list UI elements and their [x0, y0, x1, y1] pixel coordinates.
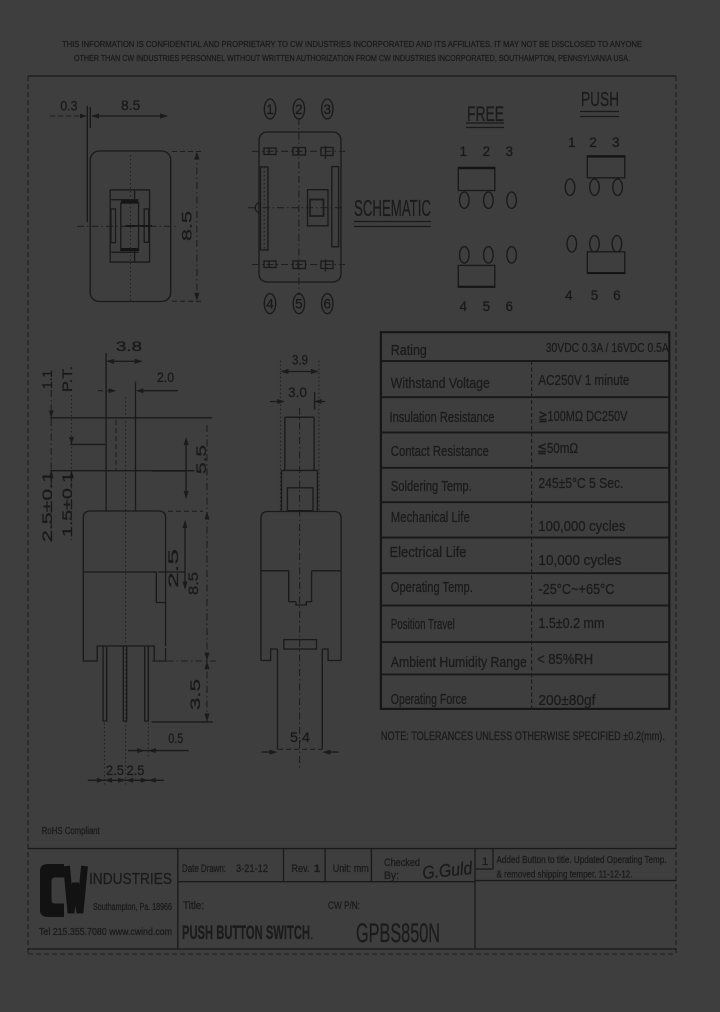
svg-text:5: 5 [591, 288, 599, 303]
svg-text:CW P/N:: CW P/N: [328, 900, 360, 912]
svg-text:1: 1 [482, 856, 488, 868]
svg-text:5.4: 5.4 [290, 730, 311, 745]
svg-text:Insulation Resistance: Insulation Resistance [390, 409, 495, 426]
svg-text:Ambient Humidity Range: Ambient Humidity Range [391, 654, 527, 671]
svg-text:Added Button to title. Updated: Added Button to title. Updated Operating… [497, 854, 667, 866]
svg-text:-25°C~+65°C: -25°C~+65°C [538, 581, 614, 598]
svg-text:6: 6 [613, 288, 621, 303]
svg-text:3.0: 3.0 [288, 385, 307, 400]
svg-text:NOTE: TOLERANCES UNLESS OTHERW: NOTE: TOLERANCES UNLESS OTHERWISE SPECIF… [381, 729, 665, 743]
svg-text:≦50mΩ: ≦50mΩ [537, 440, 578, 457]
svg-text:1.5±0.1: 1.5±0.1 [60, 472, 75, 537]
svg-text:5: 5 [295, 296, 303, 311]
svg-text:3: 3 [324, 102, 332, 117]
svg-text:THIS INFORMATION IS CONFIDENTI: THIS INFORMATION IS CONFIDENTIAL AND PRO… [62, 39, 642, 49]
svg-text:245±5°C 5 Sec.: 245±5°C 5 Sec. [538, 475, 623, 492]
svg-text:Withstand Voltage: Withstand Voltage [391, 375, 490, 392]
svg-text:2.5: 2.5 [166, 549, 181, 588]
svg-text:0.5: 0.5 [168, 731, 183, 746]
svg-text:< 85%RH: < 85%RH [537, 651, 593, 668]
svg-text:P.T.: P.T. [60, 366, 75, 392]
svg-text:2.5: 2.5 [106, 763, 124, 778]
svg-text:0.3: 0.3 [60, 99, 77, 114]
svg-text:Contact Resistance: Contact Resistance [391, 443, 489, 460]
svg-text:≧100MΩ DC250V: ≧100MΩ DC250V [538, 408, 627, 425]
svg-text:Rating: Rating [391, 342, 427, 359]
svg-text:AC250V 1 minute: AC250V 1 minute [538, 372, 629, 389]
svg-text:Operating Force: Operating Force [391, 691, 467, 708]
svg-text:OTHER THAN CW INDUSTRIES PERSO: OTHER THAN CW INDUSTRIES PERSONNEL WITHO… [74, 53, 630, 63]
svg-text:PUSH BUTTON SWITCH: PUSH BUTTON SWITCH [182, 923, 310, 944]
svg-text:2.5±0.1: 2.5±0.1 [40, 471, 55, 542]
svg-text:RoHS Compliant: RoHS Compliant [42, 826, 100, 837]
svg-text:100,000 cycles: 100,000 cycles [538, 518, 625, 535]
svg-text:1: 1 [568, 135, 576, 150]
svg-text:Rev.: Rev. [292, 863, 310, 875]
svg-text:Unit: mm: Unit: mm [333, 863, 369, 875]
svg-text:8.5: 8.5 [180, 211, 195, 241]
svg-text:1: 1 [314, 863, 320, 875]
svg-text:30VDC 0.3A / 16VDC 0.5A: 30VDC 0.3A / 16VDC 0.5A [546, 340, 669, 355]
svg-text:Electrical Life: Electrical Life [390, 544, 467, 561]
svg-text:Mechanical Life: Mechanical Life [391, 509, 470, 526]
svg-text:Date Drawn:: Date Drawn: [182, 863, 226, 875]
svg-text:.: . [310, 928, 313, 942]
svg-text:10,000 cycles: 10,000 cycles [538, 552, 621, 569]
svg-text:By:: By: [384, 870, 399, 882]
svg-text:3.9: 3.9 [292, 353, 308, 368]
svg-text:1: 1 [266, 102, 274, 117]
svg-text:2.0: 2.0 [157, 370, 174, 385]
svg-text:6: 6 [505, 299, 513, 314]
svg-text:2: 2 [483, 144, 491, 159]
svg-text:Checked: Checked [384, 857, 420, 869]
svg-text:8.5: 8.5 [121, 98, 140, 113]
svg-text:1: 1 [460, 144, 468, 159]
svg-text:SCHEMATIC: SCHEMATIC [354, 195, 431, 221]
svg-text:Position Travel: Position Travel [391, 616, 455, 633]
svg-text:3: 3 [612, 135, 620, 150]
svg-text:2: 2 [589, 135, 597, 150]
svg-text:4: 4 [460, 299, 468, 314]
svg-text:3: 3 [505, 144, 513, 159]
svg-text:Soldering Temp.: Soldering Temp. [391, 478, 472, 495]
svg-text:200±80gf: 200±80gf [538, 692, 596, 709]
svg-text:4: 4 [266, 296, 274, 311]
svg-text:GPBS850N: GPBS850N [356, 918, 440, 948]
svg-text:3.5: 3.5 [188, 679, 203, 710]
svg-text:INDUSTRIES: INDUSTRIES [89, 871, 172, 888]
svg-text:Tel 215.355.7080 www.cwind.com: Tel 215.355.7080 www.cwind.com [39, 926, 172, 938]
svg-text:Operating Temp.: Operating Temp. [391, 579, 473, 596]
svg-text:2.5: 2.5 [127, 763, 145, 778]
svg-text:3-21-12: 3-21-12 [236, 863, 268, 875]
svg-text:4: 4 [565, 288, 573, 303]
svg-text:2: 2 [295, 102, 303, 117]
svg-text:Southampton, Pa. 18966: Southampton, Pa. 18966 [93, 901, 172, 913]
svg-text:6: 6 [324, 296, 332, 311]
svg-text:3.8: 3.8 [116, 339, 142, 354]
svg-text:PUSH: PUSH [581, 89, 619, 111]
svg-text:8.5: 8.5 [186, 572, 201, 595]
svg-text:Title:: Title: [183, 900, 204, 912]
svg-text:1.5±0.2 mm: 1.5±0.2 mm [538, 615, 604, 632]
svg-text:5: 5 [483, 299, 491, 314]
svg-text:& removed shipping temper. 11-: & removed shipping temper. 11-12-12. [497, 869, 633, 881]
svg-text:1.1: 1.1 [40, 370, 55, 389]
